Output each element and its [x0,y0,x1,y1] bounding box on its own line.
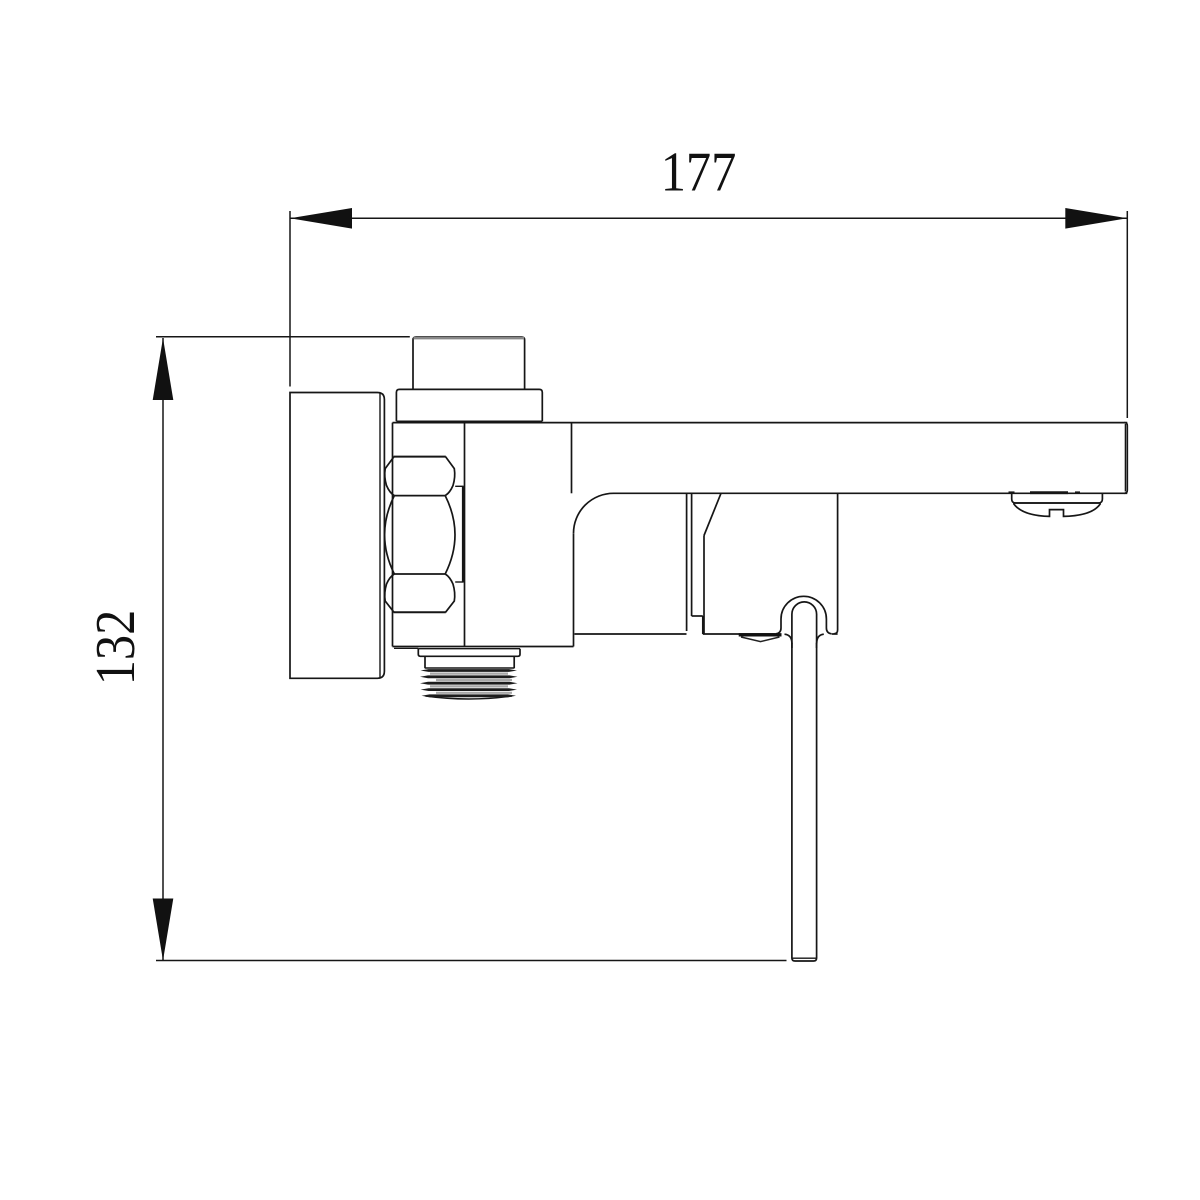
svg-text:177: 177 [661,141,737,203]
svg-text:132: 132 [84,610,146,686]
